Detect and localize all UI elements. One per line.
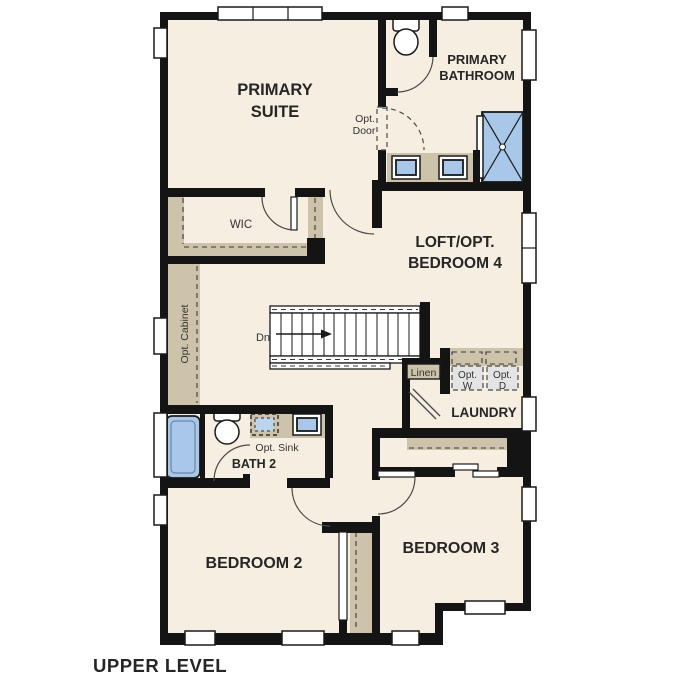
room-label-wic: WIC <box>230 219 252 231</box>
window-right-3 <box>522 397 536 431</box>
bedroom3-door-leaf <box>378 471 415 477</box>
room-label-primary-bathroom-2: BATHROOM <box>439 68 515 83</box>
window-left-1 <box>154 28 167 58</box>
label-opt-dryer-2: D <box>499 381 506 392</box>
room-label-bedroom2: BEDROOM 2 <box>206 555 303 572</box>
label-opt-sink: Opt. Sink <box>255 442 299 454</box>
window-bottom-2 <box>282 631 324 645</box>
room-label-laundry: LAUNDRY <box>451 405 517 420</box>
room-label-primary-suite-2: SUITE <box>251 103 300 121</box>
wic-shelf-left <box>168 197 184 247</box>
plan-title: UPPER LEVEL <box>93 655 227 676</box>
label-opt-cabinet: Opt. Cabinet <box>179 304 191 363</box>
window-bathroom-top <box>442 7 468 20</box>
window-left-3 <box>154 413 167 477</box>
primary-toilet-bowl <box>394 29 418 55</box>
window-right-4 <box>522 487 536 521</box>
floorplan-drawing: PRIMARY SUITE PRIMARY BATHROOM Opt. Door… <box>0 0 687 687</box>
bath2-toilet-bowl <box>215 420 239 444</box>
bedroom3-closet-slider-1 <box>453 464 478 470</box>
window-right-1 <box>522 30 536 80</box>
room-label-bath2: BATH 2 <box>232 457 276 471</box>
label-stairs-dn: Dn <box>256 332 270 344</box>
room-label-loft-1: LOFT/OPT. <box>415 234 494 251</box>
bedroom2-closet-slider <box>339 532 347 620</box>
staircase <box>270 306 420 369</box>
room-label-primary-suite-1: PRIMARY <box>237 81 312 99</box>
wic-door-leaf <box>291 197 297 230</box>
window-primary-suite-top <box>218 7 322 20</box>
window-left-2 <box>154 318 167 354</box>
room-label-loft-2: BEDROOM 4 <box>408 255 502 272</box>
label-opt-dryer-1: Opt. <box>493 370 512 381</box>
wall-outer-top <box>160 12 531 20</box>
window-left-4 <box>154 495 167 525</box>
window-bedroom3-bottom <box>465 601 505 614</box>
window-bottom-3 <box>392 631 419 645</box>
label-linen: Linen <box>411 367 437 379</box>
window-bottom-1 <box>185 631 215 645</box>
room-label-bedroom3: BEDROOM 3 <box>403 540 500 557</box>
bedroom2-closet-shelf <box>350 530 372 633</box>
label-opt-washer-1: Opt. <box>458 370 477 381</box>
room-label-primary-bathroom-1: PRIMARY <box>447 52 507 67</box>
floorplan-page: PRIMARY SUITE PRIMARY BATHROOM Opt. Door… <box>0 0 687 687</box>
label-opt-washer-2: W <box>463 381 473 392</box>
bedroom3-closet-slider-2 <box>473 471 499 477</box>
label-opt-door-2: Door <box>353 125 376 137</box>
label-opt-door-1: Opt. <box>355 113 375 125</box>
